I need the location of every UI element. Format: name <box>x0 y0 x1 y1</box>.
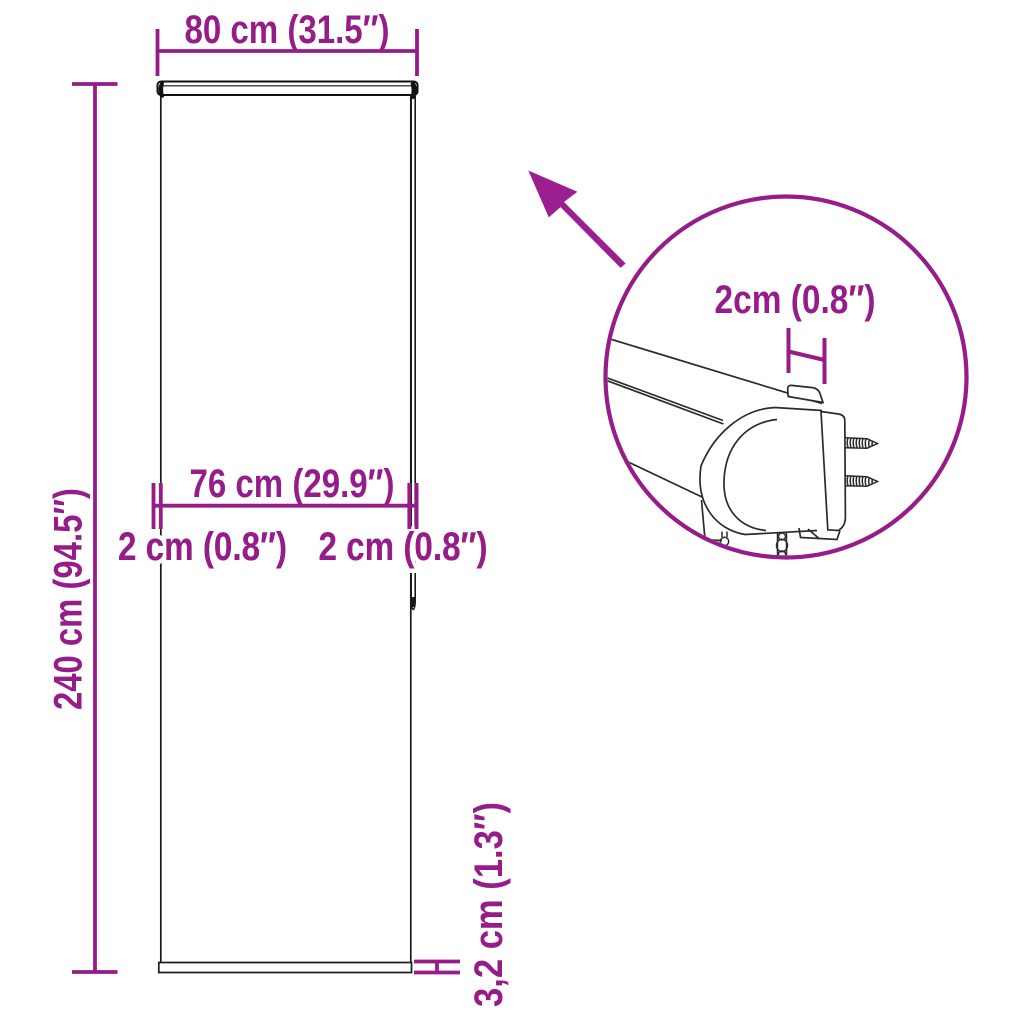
svg-text:80 cm (31.5″): 80 cm (31.5″) <box>185 8 390 52</box>
svg-text:2cm (0.8″): 2cm (0.8″) <box>715 278 876 322</box>
svg-text:2 cm (0.8″): 2 cm (0.8″) <box>118 525 287 569</box>
svg-text:3,2 cm (1.3″): 3,2 cm (1.3″) <box>467 802 511 1007</box>
svg-text:76 cm (29.9″): 76 cm (29.9″) <box>190 462 395 506</box>
svg-text:2 cm (0.8″): 2 cm (0.8″) <box>319 525 488 569</box>
svg-text:240 cm (94.5″): 240 cm (94.5″) <box>47 488 91 710</box>
